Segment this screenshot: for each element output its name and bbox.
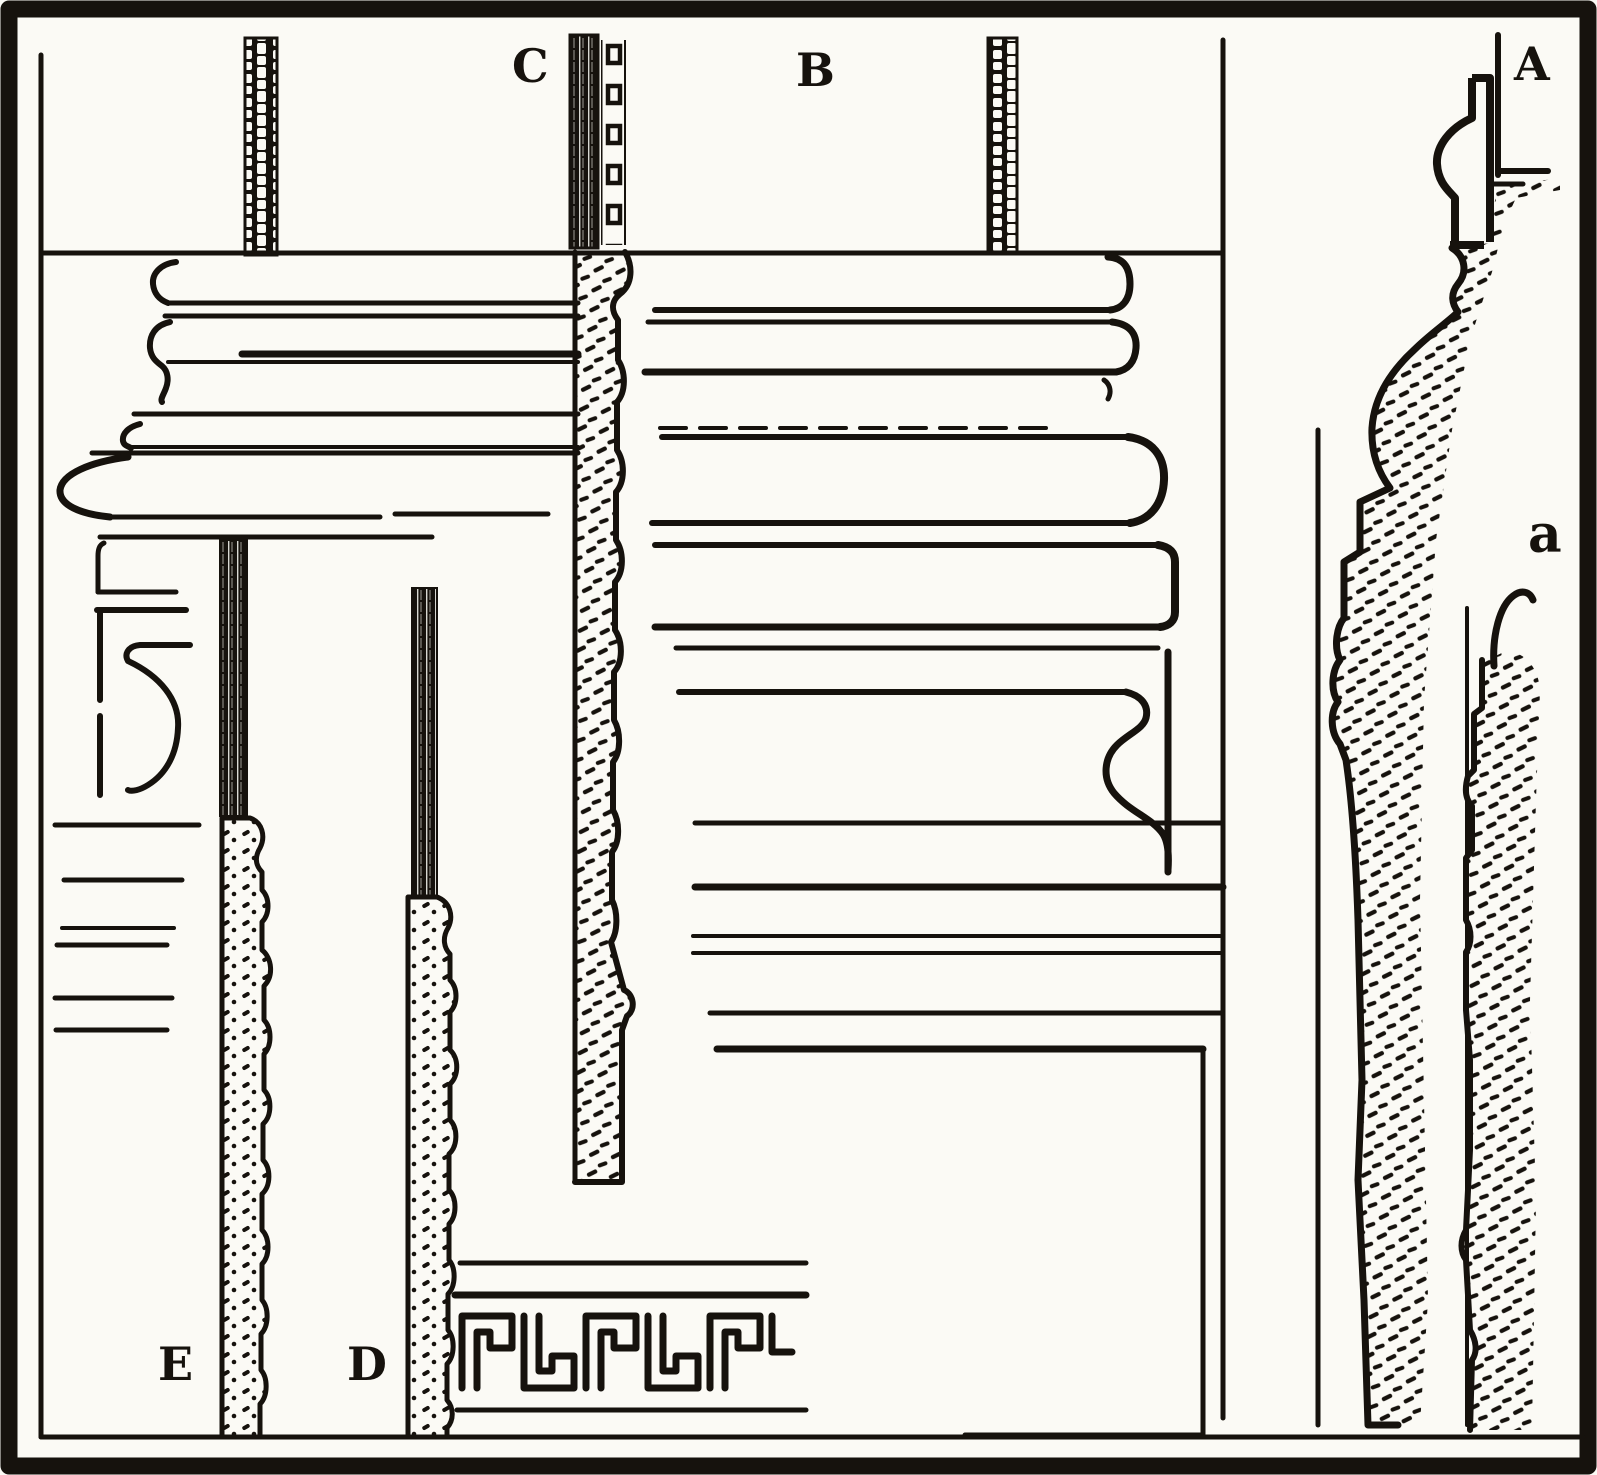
label-B: B [796,43,835,97]
dado-lines-left [55,825,199,1030]
label-C: C [512,39,549,93]
ogee-bracket-left [97,610,190,795]
label-A: A [1513,37,1551,91]
cornice-mouldings-left [60,262,578,592]
label-E: E [158,1337,193,1391]
engraving-plate: C B A a E D [0,0,1597,1475]
wall-lines-middle [693,823,1223,1013]
section-C-lath [570,35,626,248]
label-a: a [1528,504,1562,565]
cornice-mouldings-B [645,257,1175,872]
section-B-lath [988,38,1017,252]
section-E-lath [220,540,247,816]
section-D-lath [412,588,437,898]
section-E-profile [222,818,271,1437]
label-D: D [347,1337,387,1391]
wall-lath-strip-left [245,38,277,255]
greek-key-band [455,1263,806,1410]
section-a-profile [1462,592,1541,1430]
section-D-profile [408,897,457,1437]
plate-canvas: C B A a E D [0,0,1597,1475]
section-C-moulding-profile [575,252,633,1182]
recess-panel-outline [717,1049,1203,1435]
